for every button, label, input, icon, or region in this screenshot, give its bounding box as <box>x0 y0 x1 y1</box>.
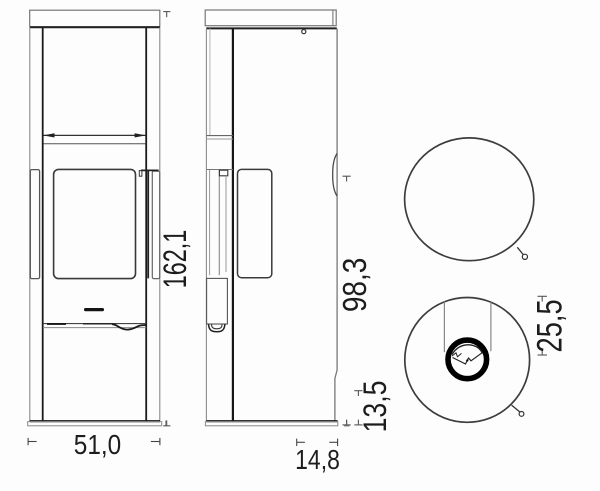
svg-text:25,5: 25,5 <box>530 299 569 352</box>
svg-text:13,5: 13,5 <box>358 381 394 433</box>
svg-text:162,1: 162,1 <box>157 230 192 288</box>
svg-text:51,0: 51,0 <box>74 428 121 460</box>
svg-text:98,3: 98,3 <box>337 258 374 313</box>
svg-text:14,8: 14,8 <box>295 445 340 476</box>
